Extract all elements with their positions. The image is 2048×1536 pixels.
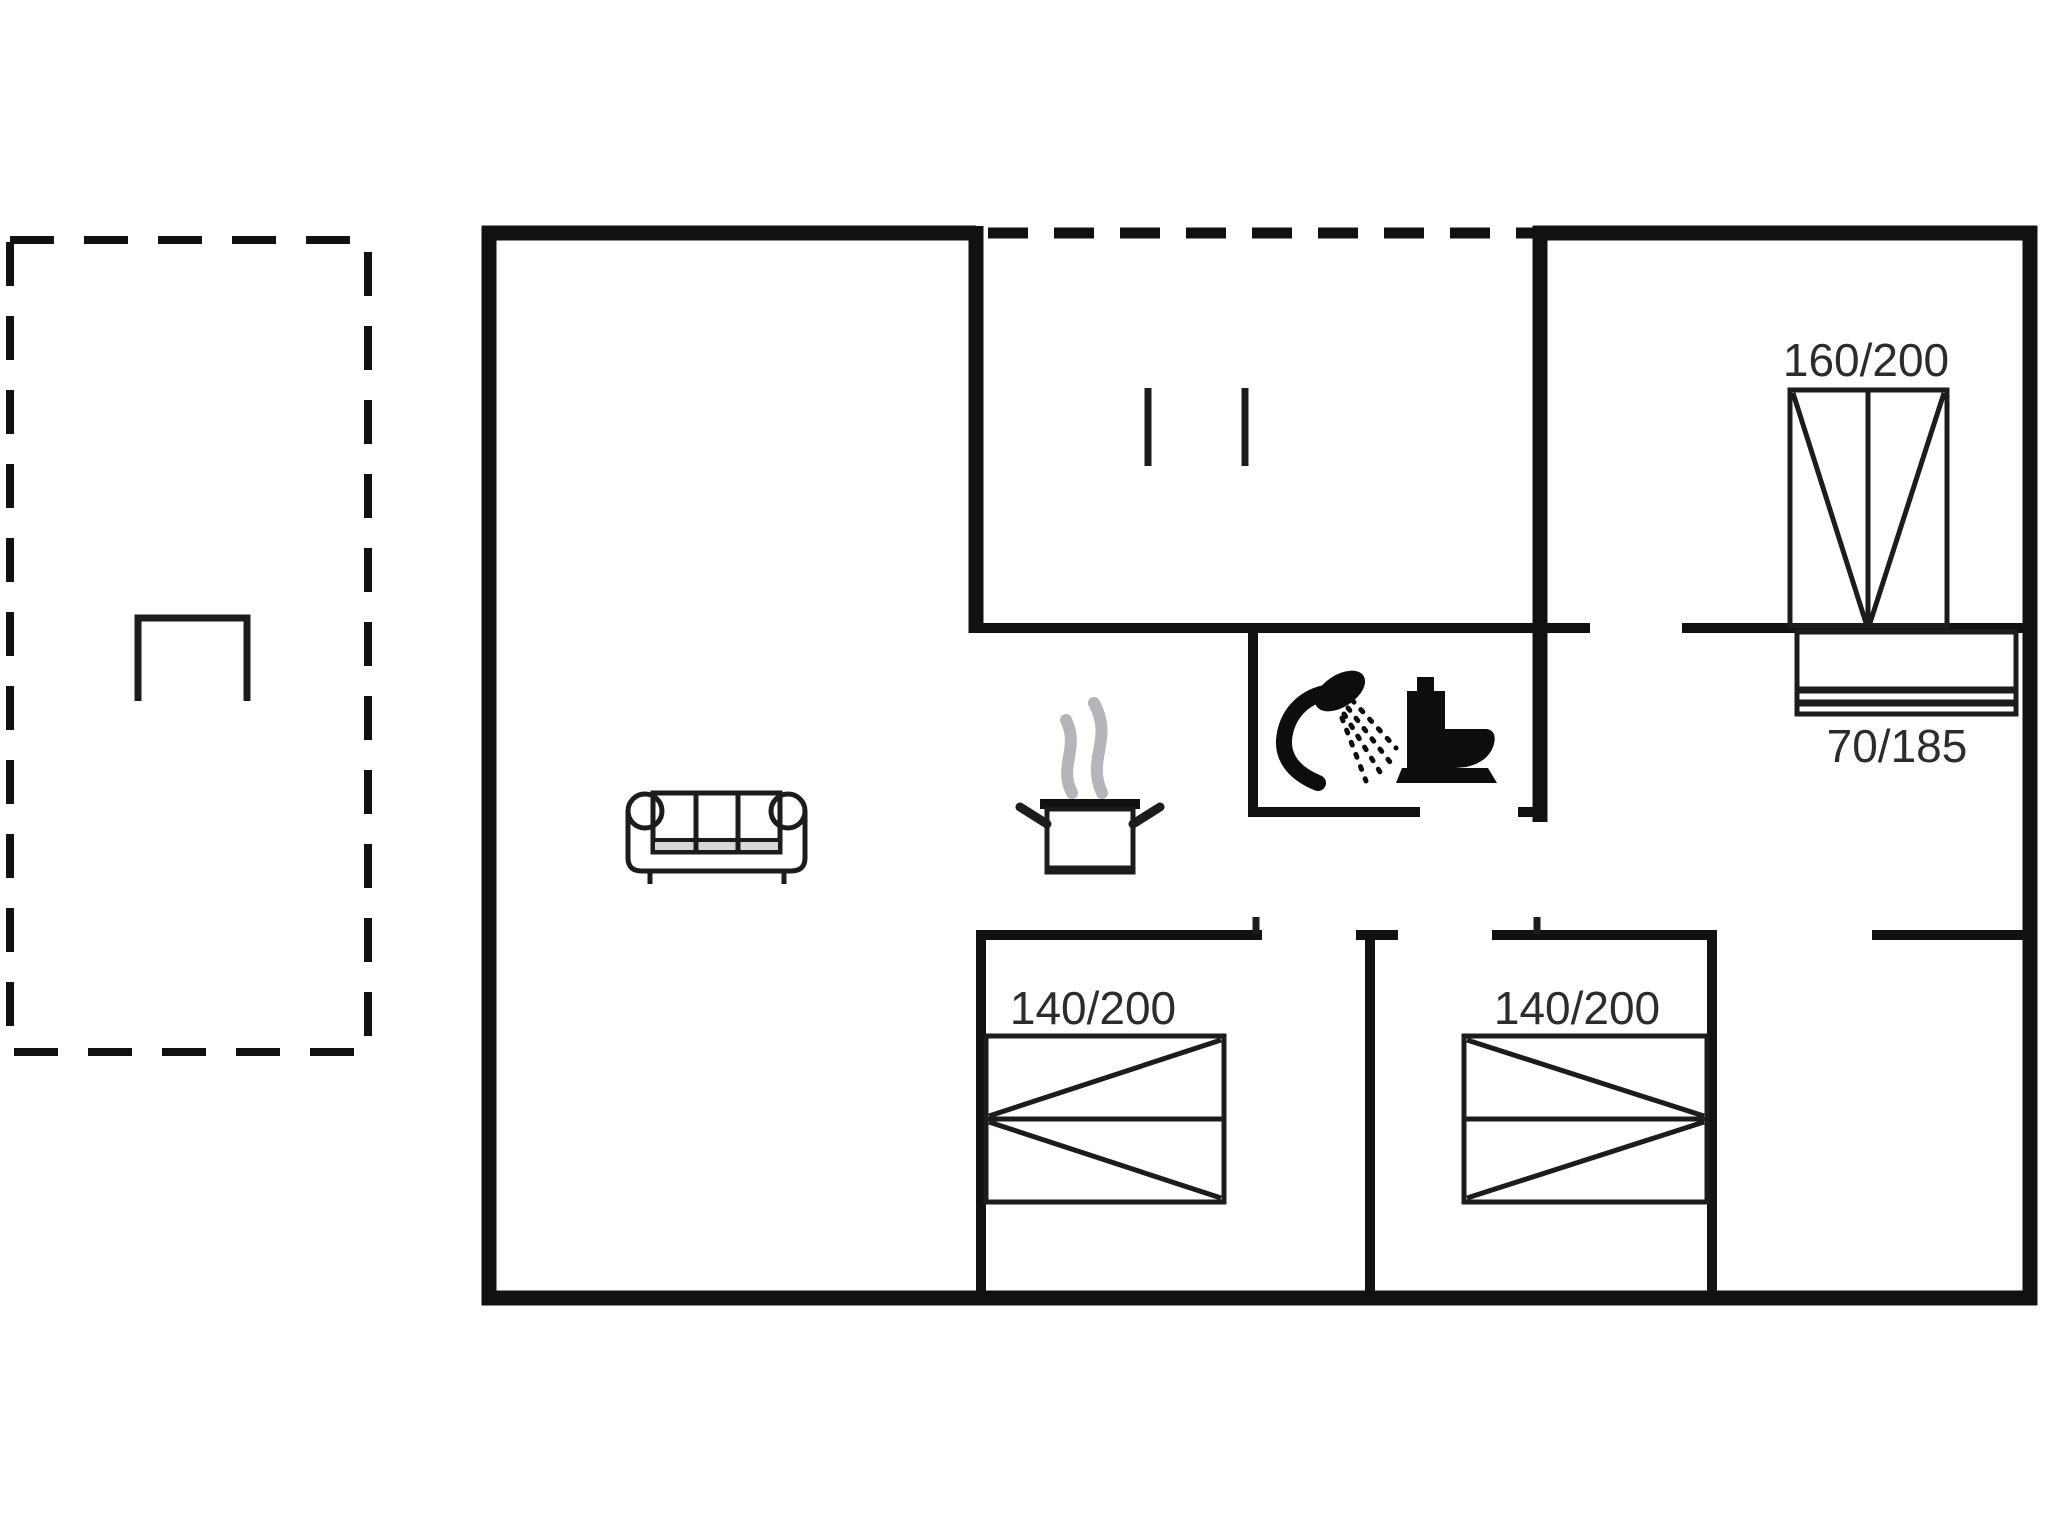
sofa-icon <box>628 793 805 884</box>
bed-size-label: 140/200 <box>1010 982 1176 1034</box>
bed-diagonal <box>1467 1122 1704 1198</box>
bed-diagonal <box>1870 393 1944 623</box>
toilet-base <box>1396 768 1497 783</box>
sofa-arm-left <box>628 794 662 828</box>
pot-body <box>1047 809 1133 872</box>
sideboard-size-label: 70/185 <box>1827 720 1968 772</box>
sofa-cushion-band <box>653 840 780 852</box>
sideboard-top-right: 70/185 <box>1797 632 2016 772</box>
sofa-arm-right <box>771 794 805 828</box>
kitchen-counter-ticks <box>1148 388 1245 466</box>
bed-bottom-right: 140/200 <box>1464 982 1707 1202</box>
steam-icon <box>1094 703 1102 793</box>
steam-icon <box>1066 720 1072 793</box>
pot-handle-left <box>1020 807 1047 824</box>
bed-size-label: 140/200 <box>1494 982 1660 1034</box>
bed-double-top-right: 160/200 <box>1783 334 1949 626</box>
shower-icon <box>1284 662 1396 783</box>
bed-diagonal <box>1793 393 1866 623</box>
toilet-lid-button <box>1417 677 1434 692</box>
terrace-outline <box>10 240 368 1052</box>
terrace-table-icon <box>138 618 247 701</box>
bed-diagonal <box>1467 1040 1704 1116</box>
bed-size-label: 160/200 <box>1783 334 1949 386</box>
pot-handle-right <box>1133 807 1160 824</box>
bed-bottom-left: 140/200 <box>986 982 1224 1202</box>
terrace-dashed-border <box>10 240 368 1052</box>
bed-diagonal <box>989 1122 1221 1198</box>
toilet-icon <box>1396 677 1497 783</box>
bed-diagonal <box>989 1040 1221 1116</box>
toilet-bowl <box>1445 729 1495 769</box>
floor-plan-canvas: 160/200 70/185 140/200 140/200 <box>0 0 2048 1536</box>
cooking-pot-icon <box>1020 703 1160 872</box>
toilet-cistern <box>1407 691 1445 769</box>
